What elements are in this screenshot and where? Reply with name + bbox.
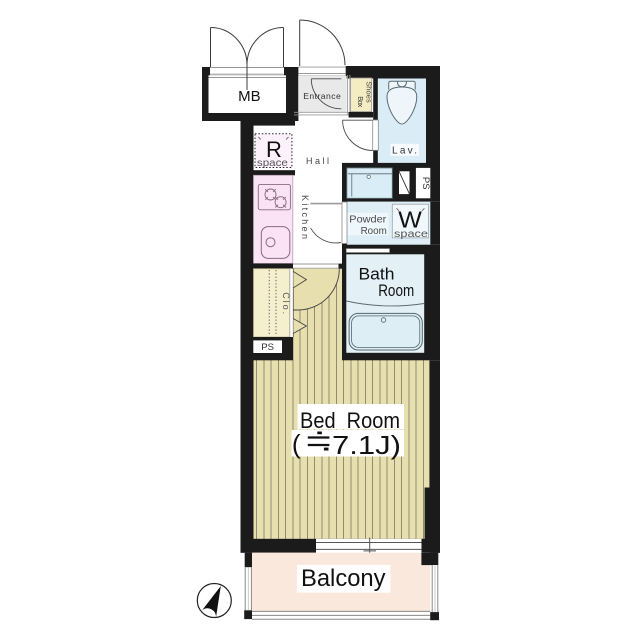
svg-text:Powder: Powder (349, 214, 387, 226)
svg-text:PS: PS (261, 342, 274, 353)
svg-text:MB: MB (238, 88, 261, 105)
svg-text:7.1J): 7.1J) (332, 430, 401, 460)
svg-text:Box: Box (356, 96, 365, 107)
svg-text:Room: Room (378, 281, 414, 300)
svg-text:Room: Room (361, 225, 387, 237)
svg-text:Entrance: Entrance (303, 91, 341, 101)
svg-text:space: space (394, 229, 429, 240)
svg-text:Balcony: Balcony (301, 565, 386, 592)
svg-text:space: space (257, 157, 288, 169)
svg-text:(: ( (292, 429, 301, 459)
svg-text:Lav.: Lav. (392, 146, 417, 157)
svg-text:PS: PS (420, 177, 431, 190)
